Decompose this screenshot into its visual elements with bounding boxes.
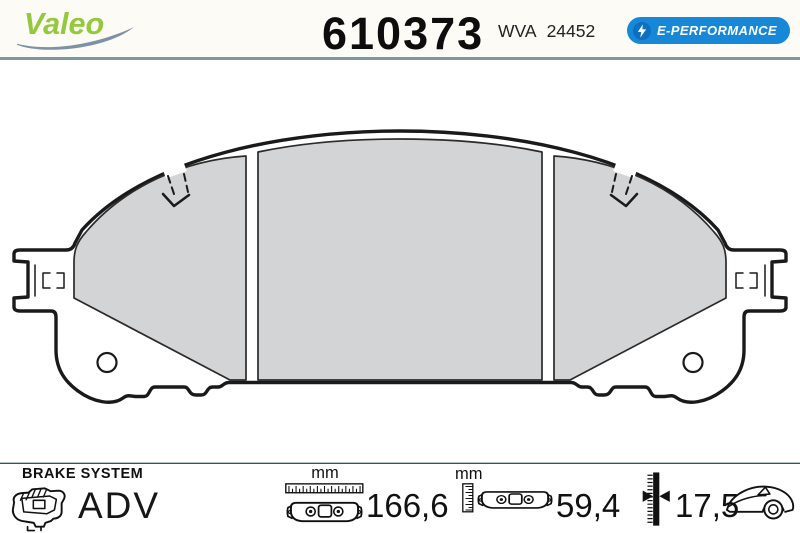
brake-pad-product-sheet: { "header": { "brand_logo": "Valeo", "pa… bbox=[0, 0, 800, 533]
lightning-bolt-icon bbox=[633, 22, 651, 40]
part-number: 610373 bbox=[322, 8, 484, 60]
badge-label: E-PERFORMANCE bbox=[657, 23, 777, 38]
wva-reference: WVA24452 bbox=[498, 21, 595, 42]
brake-system-label: BRAKE SYSTEM bbox=[22, 466, 143, 482]
pad-front-icon-width bbox=[286, 496, 363, 527]
vertical-ruler-icon bbox=[462, 483, 474, 513]
thickness-gauge-icon bbox=[637, 470, 675, 530]
brake-pad-drawing bbox=[0, 0, 800, 533]
adv-range-label: ADV bbox=[78, 485, 160, 527]
footer-spec-bar: BRAKE SYSTEM ADV mm 166,6 bbox=[0, 462, 800, 533]
rivet-hole-right bbox=[684, 353, 703, 372]
wva-number: 24452 bbox=[547, 21, 596, 41]
width-value: 166,6 bbox=[366, 487, 449, 525]
e-performance-badge: E-PERFORMANCE bbox=[627, 17, 790, 44]
width-unit-label: mm bbox=[285, 464, 365, 483]
horizontal-ruler-icon bbox=[285, 483, 364, 494]
rivet-hole-left bbox=[98, 353, 117, 372]
pad-front-icon-height bbox=[477, 486, 553, 513]
valeo-logo: Valeo bbox=[14, 6, 142, 52]
wva-label: WVA bbox=[498, 21, 537, 41]
friction-pad-middle-segment bbox=[258, 139, 542, 380]
header-bar: Valeo 610373 WVA24452 E-PERFORMANCE bbox=[0, 0, 800, 60]
car-icon bbox=[725, 479, 796, 523]
brake-caliper-icon bbox=[6, 484, 76, 532]
height-unit-label: mm bbox=[455, 465, 483, 484]
valeo-logo-text: Valeo bbox=[24, 7, 104, 41]
height-value: 59,4 bbox=[556, 487, 620, 525]
